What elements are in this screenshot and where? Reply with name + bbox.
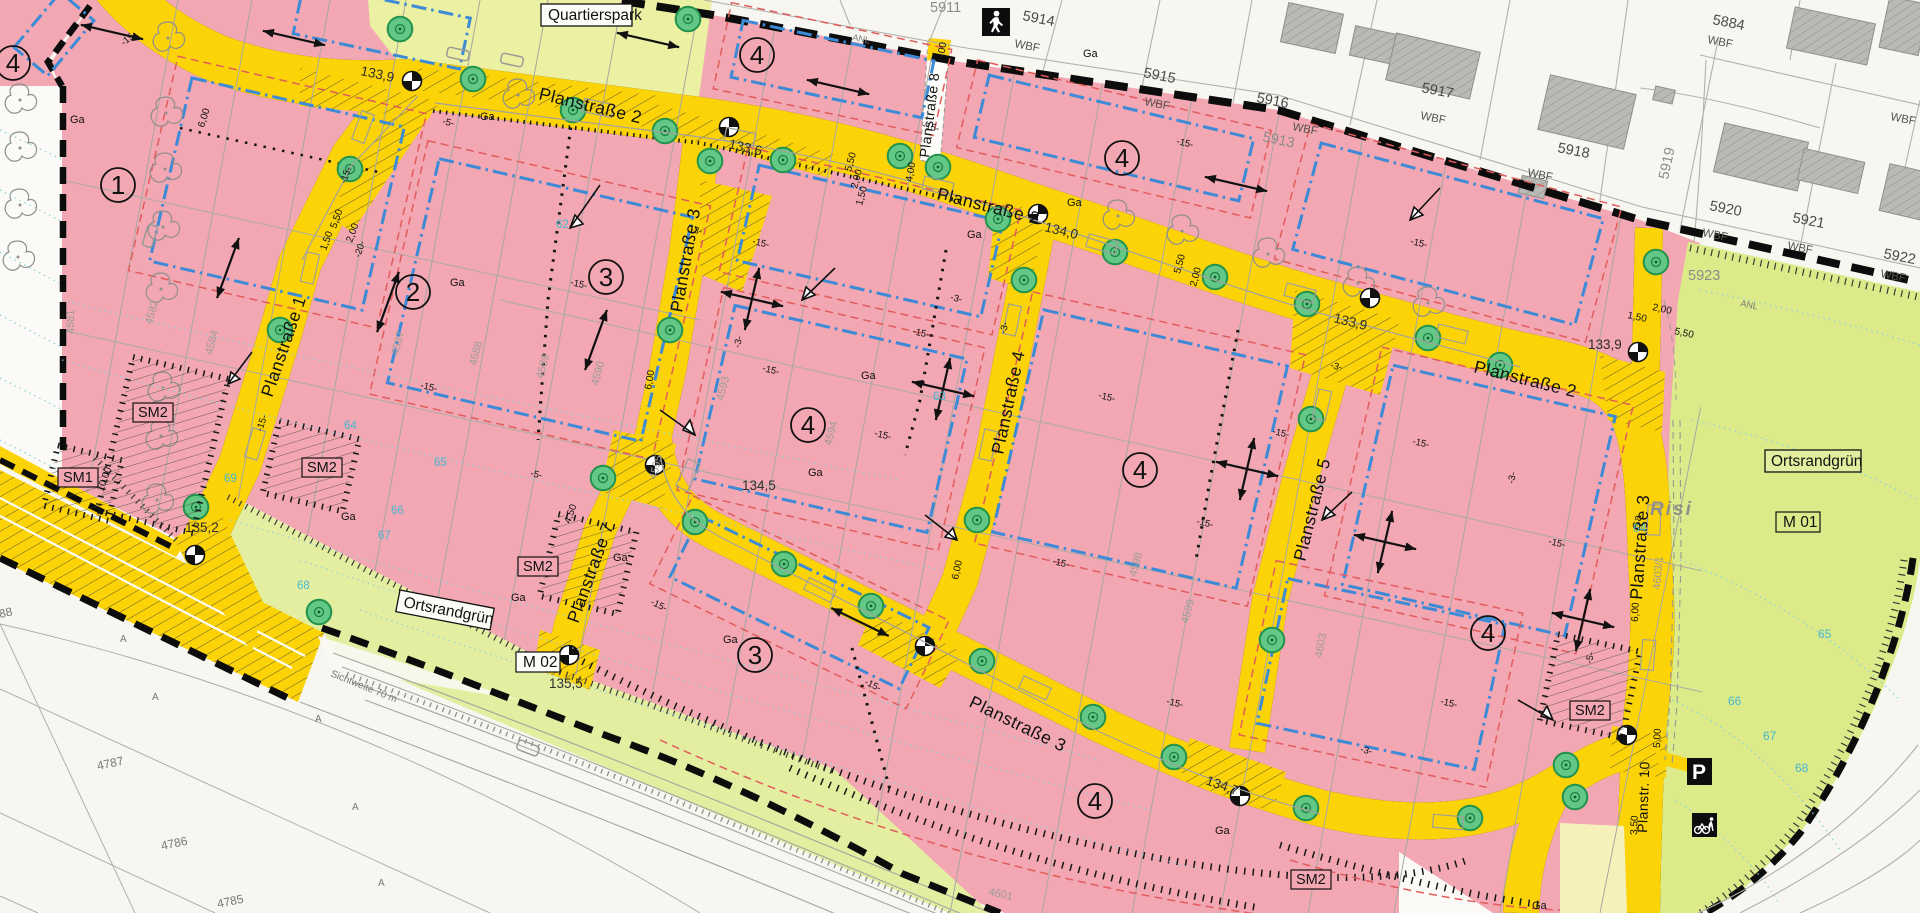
svg-text:Ortsrandgrün: Ortsrandgrün <box>1771 453 1862 470</box>
svg-text:A: A <box>352 802 359 813</box>
svg-text:-5-: -5- <box>1584 651 1597 664</box>
svg-text:63: 63 <box>933 391 946 403</box>
svg-text:66: 66 <box>1728 694 1742 708</box>
svg-text:69: 69 <box>224 473 237 485</box>
svg-text:Quartierspark: Quartierspark <box>548 7 642 24</box>
svg-text:Ga: Ga <box>1083 48 1099 60</box>
svg-text:62: 62 <box>556 219 569 231</box>
svg-text:Risi: Risi <box>1650 499 1693 520</box>
svg-text:Ga: Ga <box>808 467 824 479</box>
svg-text:4: 4 <box>1115 143 1129 173</box>
svg-text:4: 4 <box>801 410 815 440</box>
svg-text:66: 66 <box>391 505 404 517</box>
svg-text:4581: 4581 <box>65 310 77 334</box>
svg-text:Ga: Ga <box>450 277 466 289</box>
svg-text:Ga: Ga <box>480 111 496 123</box>
svg-text:SM1: SM1 <box>63 470 93 486</box>
svg-text:SM2: SM2 <box>523 559 553 575</box>
svg-text:4: 4 <box>1481 618 1495 648</box>
svg-text:1: 1 <box>111 170 125 200</box>
svg-text:Ga: Ga <box>1067 197 1083 209</box>
svg-text:3: 3 <box>599 262 613 292</box>
svg-text:Ga: Ga <box>70 114 86 126</box>
svg-text:M 01: M 01 <box>1783 514 1817 531</box>
svg-text:SM2: SM2 <box>1296 872 1326 888</box>
svg-text:5,00: 5,00 <box>1652 728 1664 748</box>
svg-text:2: 2 <box>406 277 420 307</box>
svg-text:5911: 5911 <box>930 0 961 16</box>
svg-text:M 02: M 02 <box>523 654 557 671</box>
svg-text:4: 4 <box>6 48 20 78</box>
svg-text:3: 3 <box>748 640 762 670</box>
svg-text:A: A <box>152 692 159 703</box>
svg-text:3,50: 3,50 <box>1629 815 1641 835</box>
svg-text:67: 67 <box>378 530 391 542</box>
svg-text:64: 64 <box>344 420 357 432</box>
svg-text:64: 64 <box>1633 521 1647 535</box>
svg-text:5923: 5923 <box>1688 268 1720 284</box>
svg-text:65: 65 <box>434 457 447 469</box>
svg-text:Ga: Ga <box>861 370 877 382</box>
svg-text:SM2: SM2 <box>1575 703 1605 719</box>
svg-text:SM2: SM2 <box>138 405 168 421</box>
svg-text:Ga: Ga <box>613 552 629 564</box>
svg-text:A: A <box>315 714 322 725</box>
svg-text:65: 65 <box>1818 627 1832 641</box>
svg-text:Ga: Ga <box>341 511 357 523</box>
svg-text:68: 68 <box>297 580 310 592</box>
svg-text:A: A <box>378 878 385 889</box>
svg-text:4: 4 <box>1133 455 1147 485</box>
svg-text:Ga: Ga <box>967 229 983 241</box>
svg-text:P: P <box>1692 761 1706 784</box>
svg-text:135,5: 135,5 <box>549 676 583 691</box>
svg-text:Ga: Ga <box>1215 825 1231 837</box>
svg-text:135,2: 135,2 <box>185 520 219 535</box>
svg-text:4: 4 <box>1088 786 1102 816</box>
svg-text:Ga: Ga <box>511 592 527 604</box>
svg-text:-3-: -3- <box>1506 471 1519 484</box>
svg-text:6,00: 6,00 <box>1630 602 1642 622</box>
svg-text:Ga: Ga <box>723 634 739 646</box>
svg-text:67: 67 <box>1763 729 1777 743</box>
svg-text:68: 68 <box>1795 761 1809 775</box>
svg-text:4: 4 <box>750 40 764 70</box>
svg-text:Ga: Ga <box>1532 900 1548 912</box>
svg-text:134,5: 134,5 <box>742 478 776 493</box>
svg-text:SM2: SM2 <box>307 460 337 476</box>
svg-text:A: A <box>120 634 127 645</box>
svg-text:133,9: 133,9 <box>1588 337 1622 352</box>
